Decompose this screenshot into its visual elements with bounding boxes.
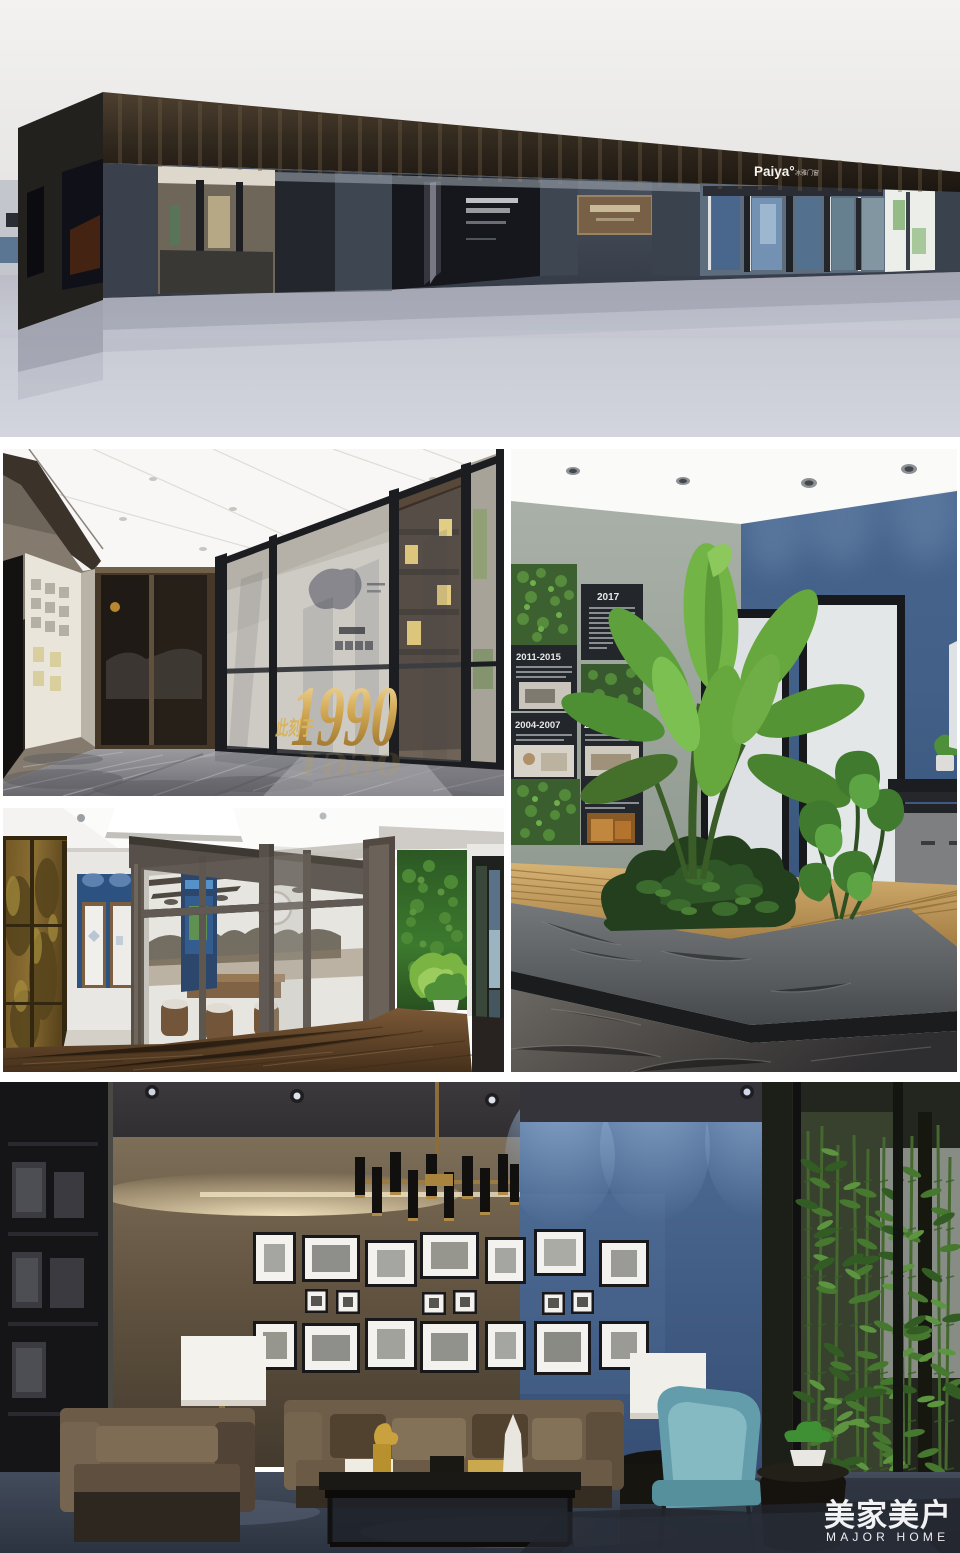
svg-text:此刻于: 此刻于 <box>274 716 315 740</box>
svg-text:1990: 1990 <box>292 745 404 783</box>
svg-text:冰雅门窗: 冰雅门窗 <box>795 169 819 177</box>
svg-text:2004-2007: 2004-2007 <box>515 720 560 731</box>
svg-text:Paiya°: Paiya° <box>754 164 795 179</box>
svg-text:2017: 2017 <box>597 592 620 603</box>
svg-text:美家美户: 美家美户 <box>824 1498 952 1533</box>
svg-text:2011-2015: 2011-2015 <box>516 652 562 663</box>
svg-text:MAJOR HOME: MAJOR HOME <box>826 1530 949 1544</box>
